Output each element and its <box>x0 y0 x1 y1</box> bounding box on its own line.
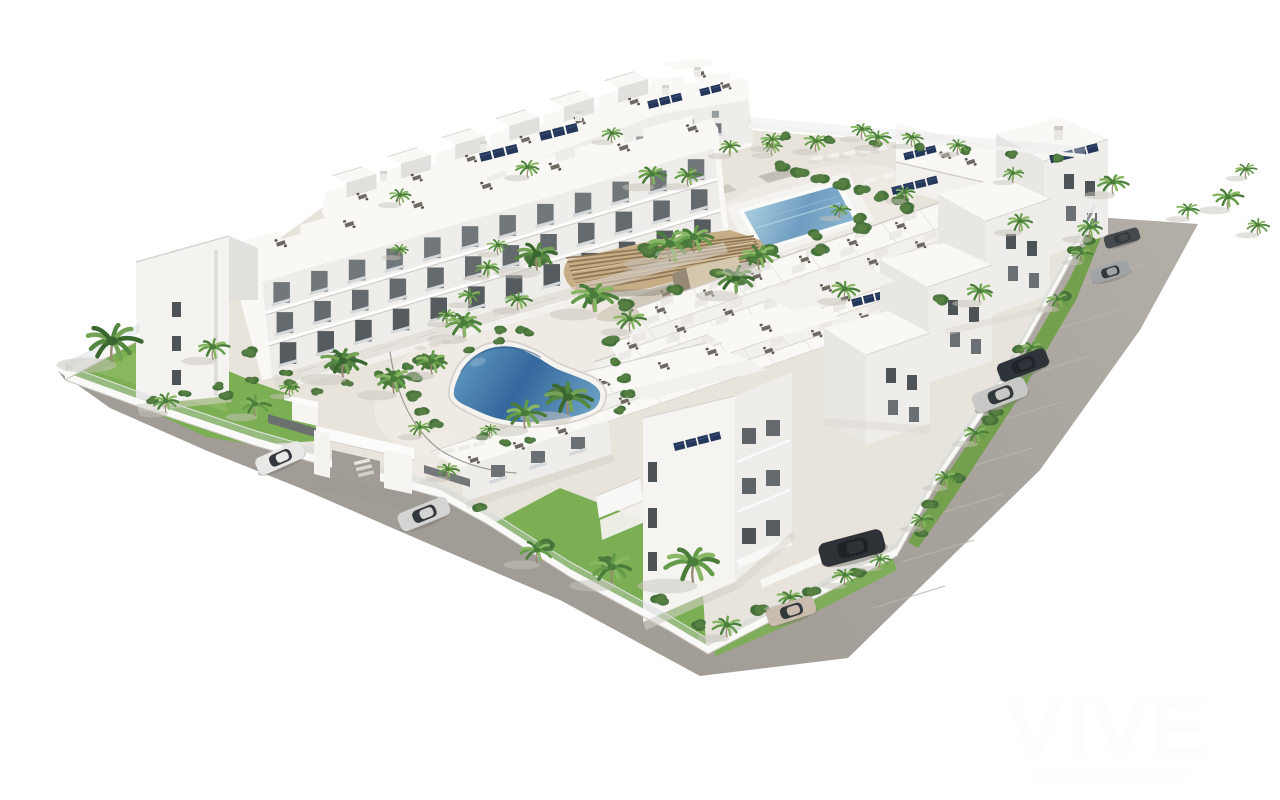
svg-text:VIVE: VIVE <box>1006 681 1210 777</box>
